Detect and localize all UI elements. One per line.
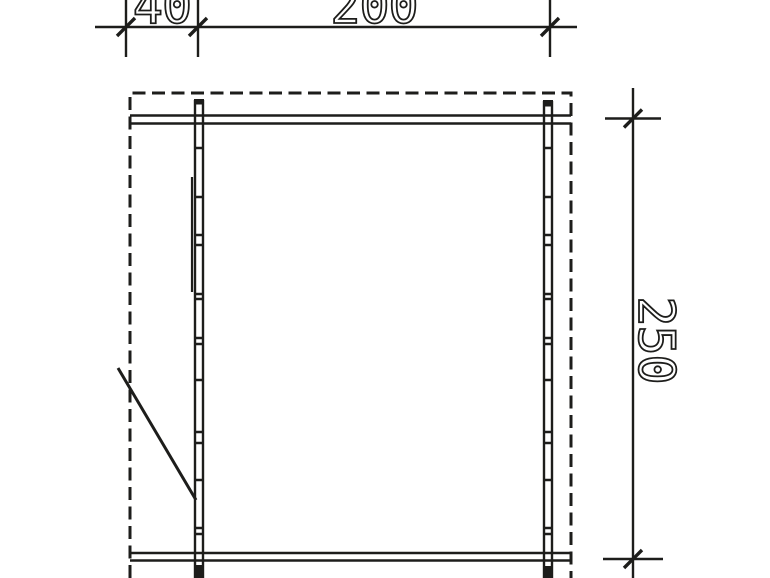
left-wall-bottom-cap: [194, 565, 204, 578]
right-wall-lines: [544, 101, 552, 578]
right-wall-bottom-cap: [543, 566, 553, 578]
dimension-label-side-depth: 250: [627, 296, 685, 383]
right-wall: [543, 100, 553, 578]
floor-plan-drawing: 40 200 250: [0, 0, 770, 578]
dimension-top: 40 200: [95, 0, 577, 57]
left-wall: [194, 99, 204, 578]
left-wall-top-cap: [194, 99, 204, 105]
dimension-right: 250: [603, 88, 685, 578]
dimension-label-door-width: 40: [133, 0, 191, 35]
dimension-label-front-width: 200: [330, 0, 417, 35]
right-wall-top-cap: [543, 100, 553, 107]
cad-floor-plan-canvas: 40 200 250: [0, 0, 770, 578]
